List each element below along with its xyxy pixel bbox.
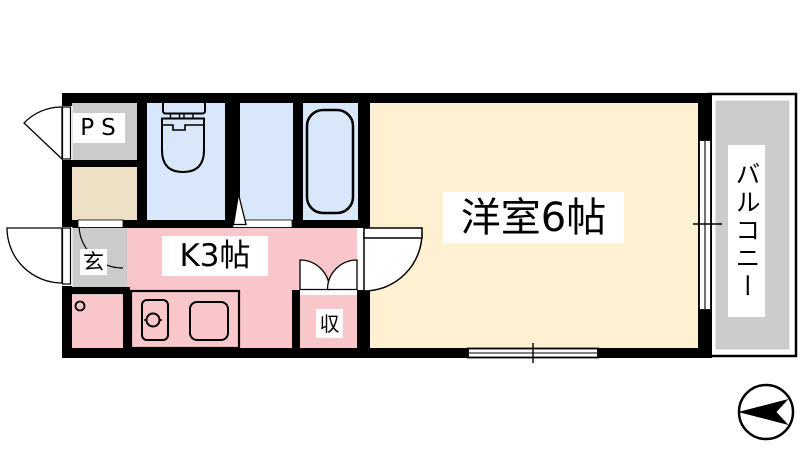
floorplan-drawing	[0, 0, 800, 450]
wall-ps-hall	[67, 160, 142, 167]
wet-area-floor	[142, 98, 363, 225]
pipe-space-label: PS	[73, 113, 125, 143]
wall-top	[62, 93, 712, 103]
entrance-label: 玄	[80, 249, 107, 275]
wall-bath-western	[358, 98, 370, 228]
wall-storage-left	[292, 290, 300, 348]
western-room-door-leaf	[364, 228, 422, 238]
ps-door-swing-icon	[24, 107, 62, 159]
opening-storage-doors	[300, 290, 357, 295]
western-room-label: 洋室6帖	[443, 192, 624, 243]
wall-bottom	[62, 348, 712, 358]
kitchen-label: K3帖	[162, 236, 268, 276]
entry-hall-floor	[67, 165, 142, 225]
floorplan-canvas: PS 玄 K3帖 収 洋室6帖 バルコニー	[0, 0, 800, 450]
ps-door-leaf	[63, 107, 71, 159]
entrance-door-leaf	[63, 228, 71, 284]
wall-counter-left	[123, 287, 130, 348]
entrance-door-swing-icon	[7, 228, 62, 283]
storage-label: 収	[316, 309, 343, 338]
wall-entrance-bottom	[67, 287, 130, 294]
opening-hall-door	[78, 220, 123, 228]
wall-storage-western	[357, 290, 370, 348]
balcony-label: バルコニー	[728, 145, 765, 317]
compass	[738, 385, 793, 439]
wall-washroom-bath	[293, 98, 303, 225]
